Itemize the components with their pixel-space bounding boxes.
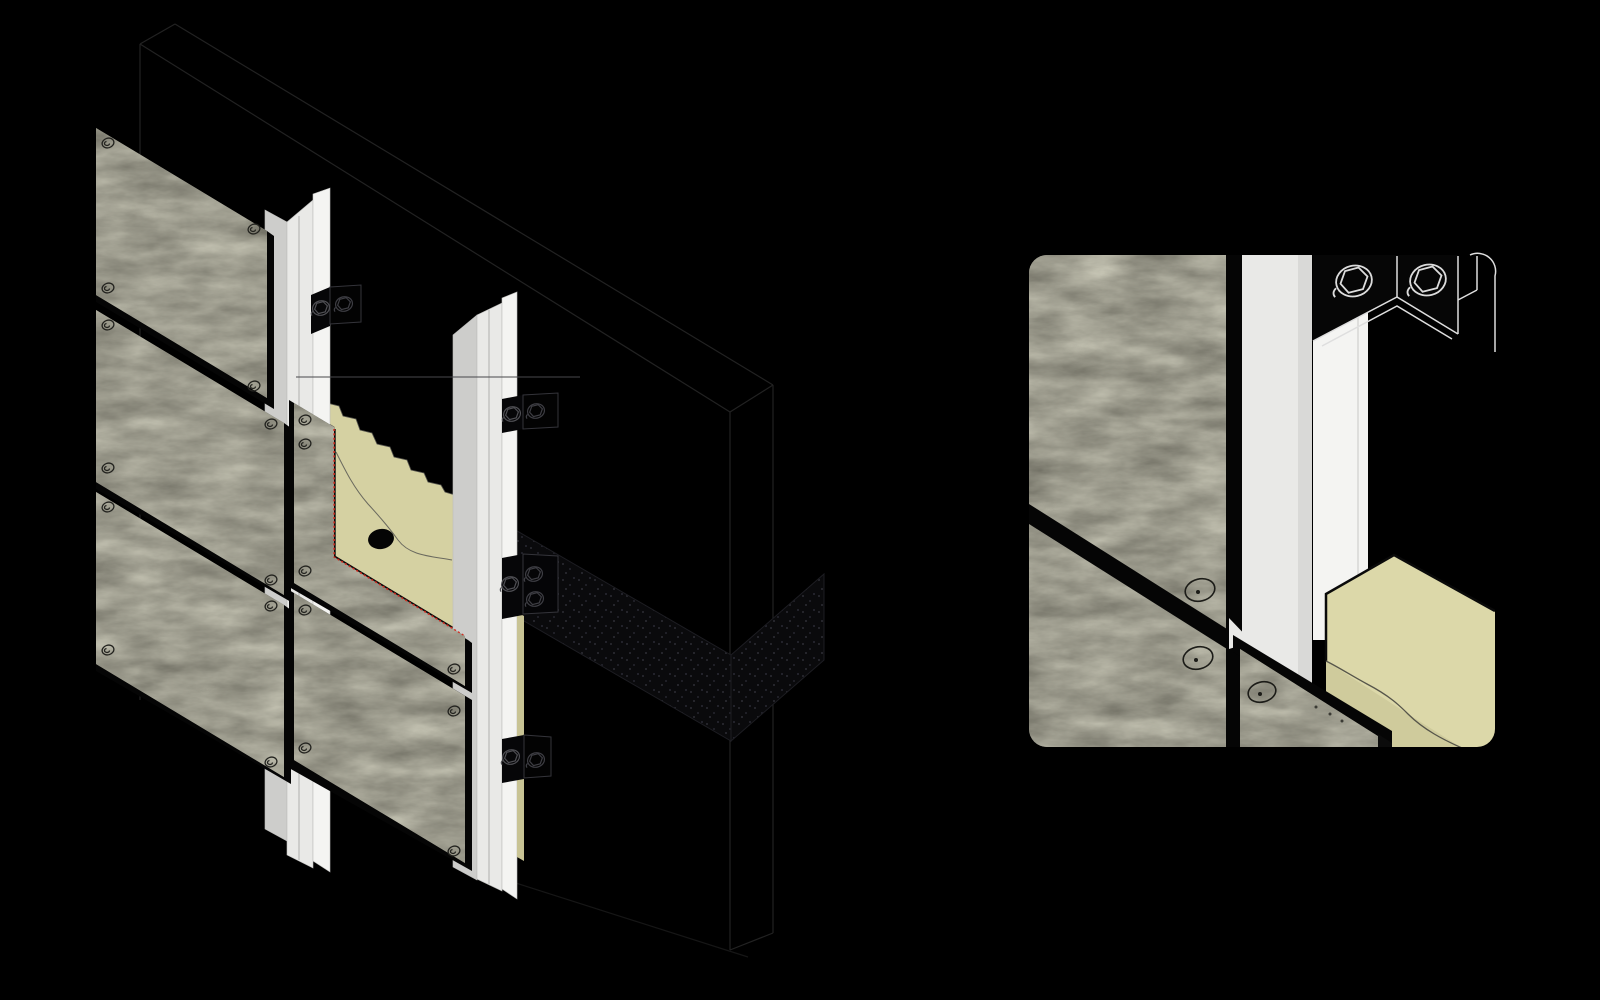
bracket-back-plate [523,393,558,429]
detail-vertical-joint [1226,255,1242,747]
wall-top-left-edge [140,24,175,44]
wall-end-bottom-edge [730,933,773,950]
bracket-rail-right-top [502,393,558,433]
wall-end-top-edge [730,385,773,412]
screenshot-root [0,0,1600,1000]
bracket-rail-right-bottom [501,735,551,783]
bracket-plate [311,287,330,334]
slab-band-end-face [731,574,824,741]
facade-diagram-canvas [0,0,1600,1000]
detail-rail-front-shade [1298,255,1312,747]
isometric-facade-assembly [96,24,824,957]
detail-facade-panel-left [1029,255,1227,747]
bracket-back-plate [524,735,551,778]
bracket-back-plate [330,285,361,324]
joint-detail-callout [1029,255,1495,750]
wall-bottom-front-edge [500,878,748,957]
bracket-back-plate [523,554,558,614]
bracket-rail-left-top [311,285,361,334]
bracket-rail-right-mid [500,554,558,619]
